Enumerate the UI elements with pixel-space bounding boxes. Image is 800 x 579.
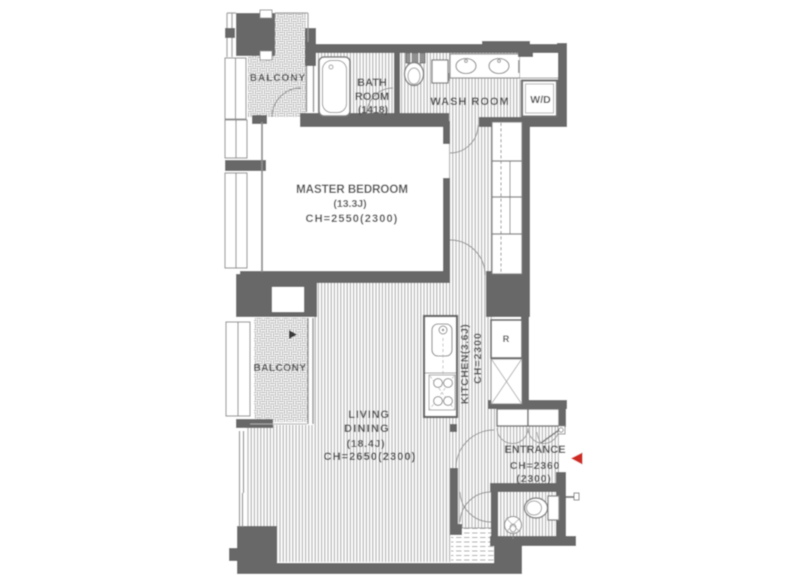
svg-text:(2300): (2300) bbox=[516, 473, 551, 485]
svg-text:BALCONY: BALCONY bbox=[250, 73, 306, 84]
svg-text:(13.3J): (13.3J) bbox=[333, 198, 366, 210]
svg-text:DINING: DINING bbox=[344, 423, 390, 435]
svg-text:MASTER BEDROOM: MASTER BEDROOM bbox=[296, 184, 408, 196]
svg-text:ROOM: ROOM bbox=[355, 91, 389, 103]
svg-text:BALCONY: BALCONY bbox=[254, 363, 307, 374]
svg-text:ENTRANCE: ENTRANCE bbox=[504, 444, 565, 456]
svg-text:KITCHEN(3.6J): KITCHEN(3.6J) bbox=[459, 324, 471, 405]
svg-text:CH=2300: CH=2300 bbox=[472, 332, 484, 384]
svg-text:CH=2650(2300): CH=2650(2300) bbox=[324, 451, 417, 463]
svg-text:(1418): (1418) bbox=[358, 104, 388, 116]
svg-text:BATH: BATH bbox=[357, 77, 387, 89]
svg-text:CH=2360: CH=2360 bbox=[510, 460, 560, 472]
svg-text:W/D: W/D bbox=[530, 94, 551, 106]
svg-text:(18.4J): (18.4J) bbox=[347, 438, 386, 450]
svg-text:CH=2550(2300): CH=2550(2300) bbox=[306, 213, 399, 225]
svg-text:WASH ROOM: WASH ROOM bbox=[430, 96, 509, 108]
svg-text:LIVING: LIVING bbox=[348, 409, 389, 421]
svg-text:R: R bbox=[503, 334, 510, 344]
